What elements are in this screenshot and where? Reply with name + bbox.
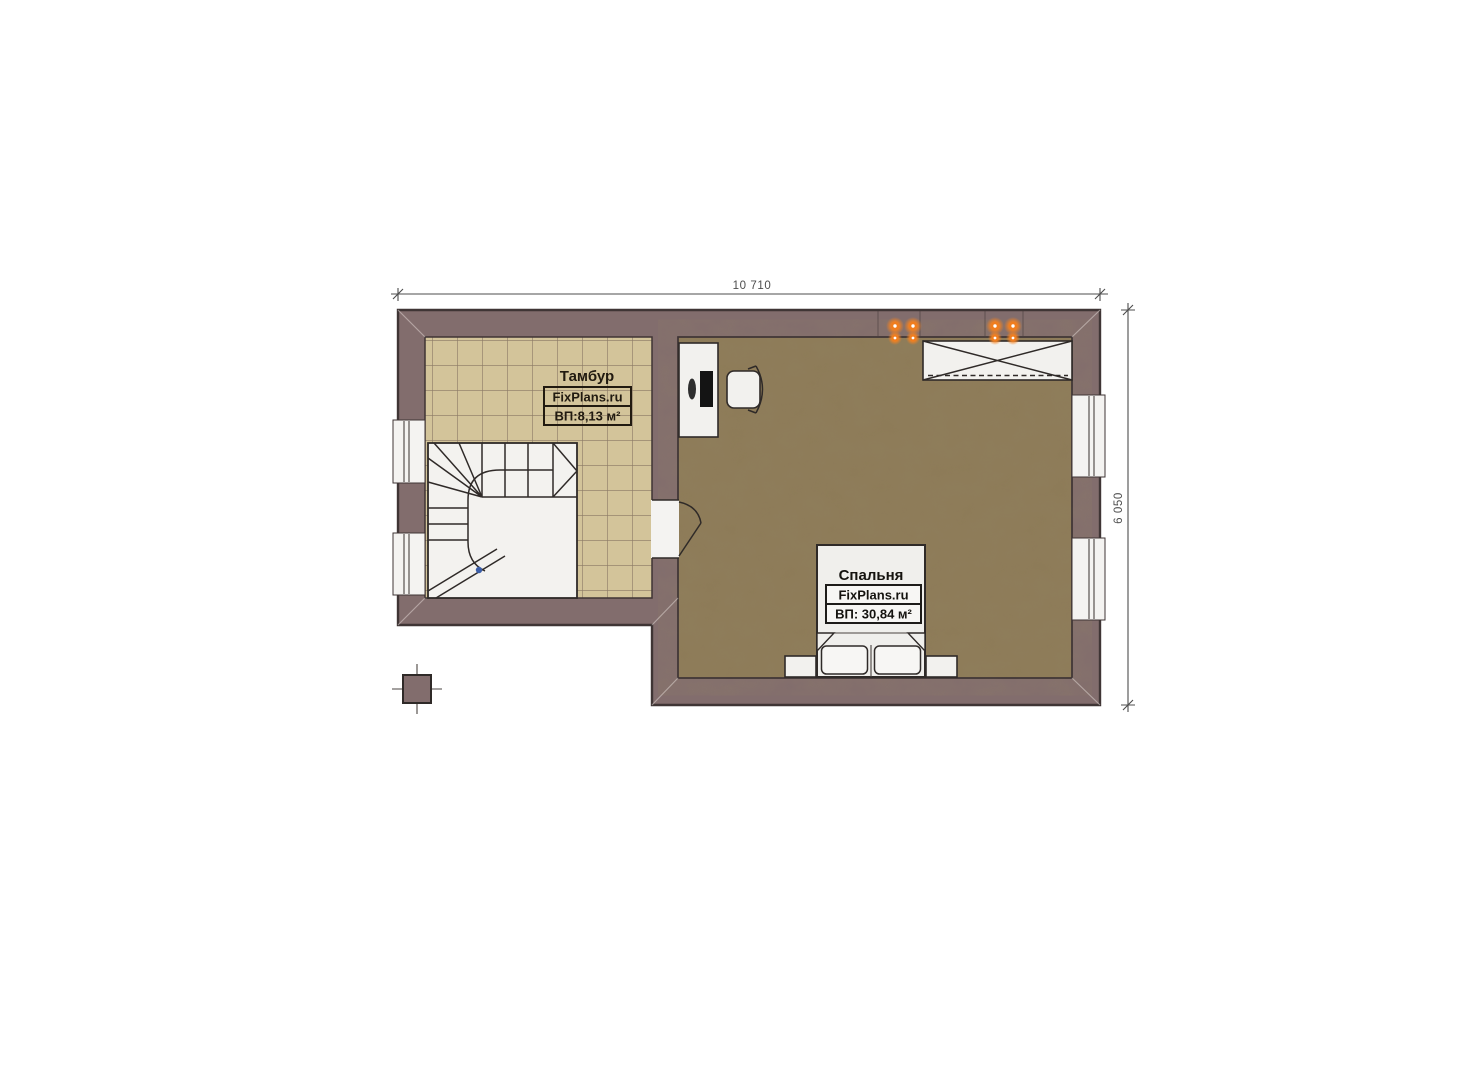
room-brand: FixPlans.ru (552, 390, 622, 405)
dimension-top: 10 710 (391, 280, 1108, 301)
window-icon (393, 420, 425, 483)
room-name: Спальня (839, 567, 904, 584)
desk-icon (679, 343, 718, 437)
monitor-icon (700, 371, 713, 407)
office-chair-icon (727, 366, 763, 413)
stair-direction-marker (476, 567, 482, 573)
floorplan-canvas: 10 710 6 050 Тамбур FixPlans.ru ВП:8,13 … (0, 0, 1473, 1080)
nightstand-icon (926, 656, 957, 677)
window-icon (393, 533, 425, 595)
dimension-height-label: 6 050 (1113, 492, 1125, 524)
wardrobe-icon (923, 341, 1072, 380)
room-area: ВП: 30,84 м² (835, 607, 912, 622)
floor-plan-svg: 10 710 6 050 Тамбур FixPlans.ru ВП:8,13 … (0, 0, 1473, 1080)
pillow-icon (822, 646, 868, 674)
desk-accessory-icon (688, 379, 696, 400)
stairs-icon (428, 443, 577, 598)
pillow-icon (875, 646, 921, 674)
dimension-width-label: 10 710 (733, 280, 772, 292)
nightstand-icon (785, 656, 816, 677)
room-brand: FixPlans.ru (838, 588, 908, 603)
room-area: ВП:8,13 м² (555, 409, 622, 424)
dimension-right: 6 050 (1113, 303, 1135, 712)
window-icon (1072, 395, 1105, 477)
room-name: Тамбур (560, 368, 614, 385)
window-icon (1072, 538, 1105, 620)
column-icon (392, 664, 442, 714)
